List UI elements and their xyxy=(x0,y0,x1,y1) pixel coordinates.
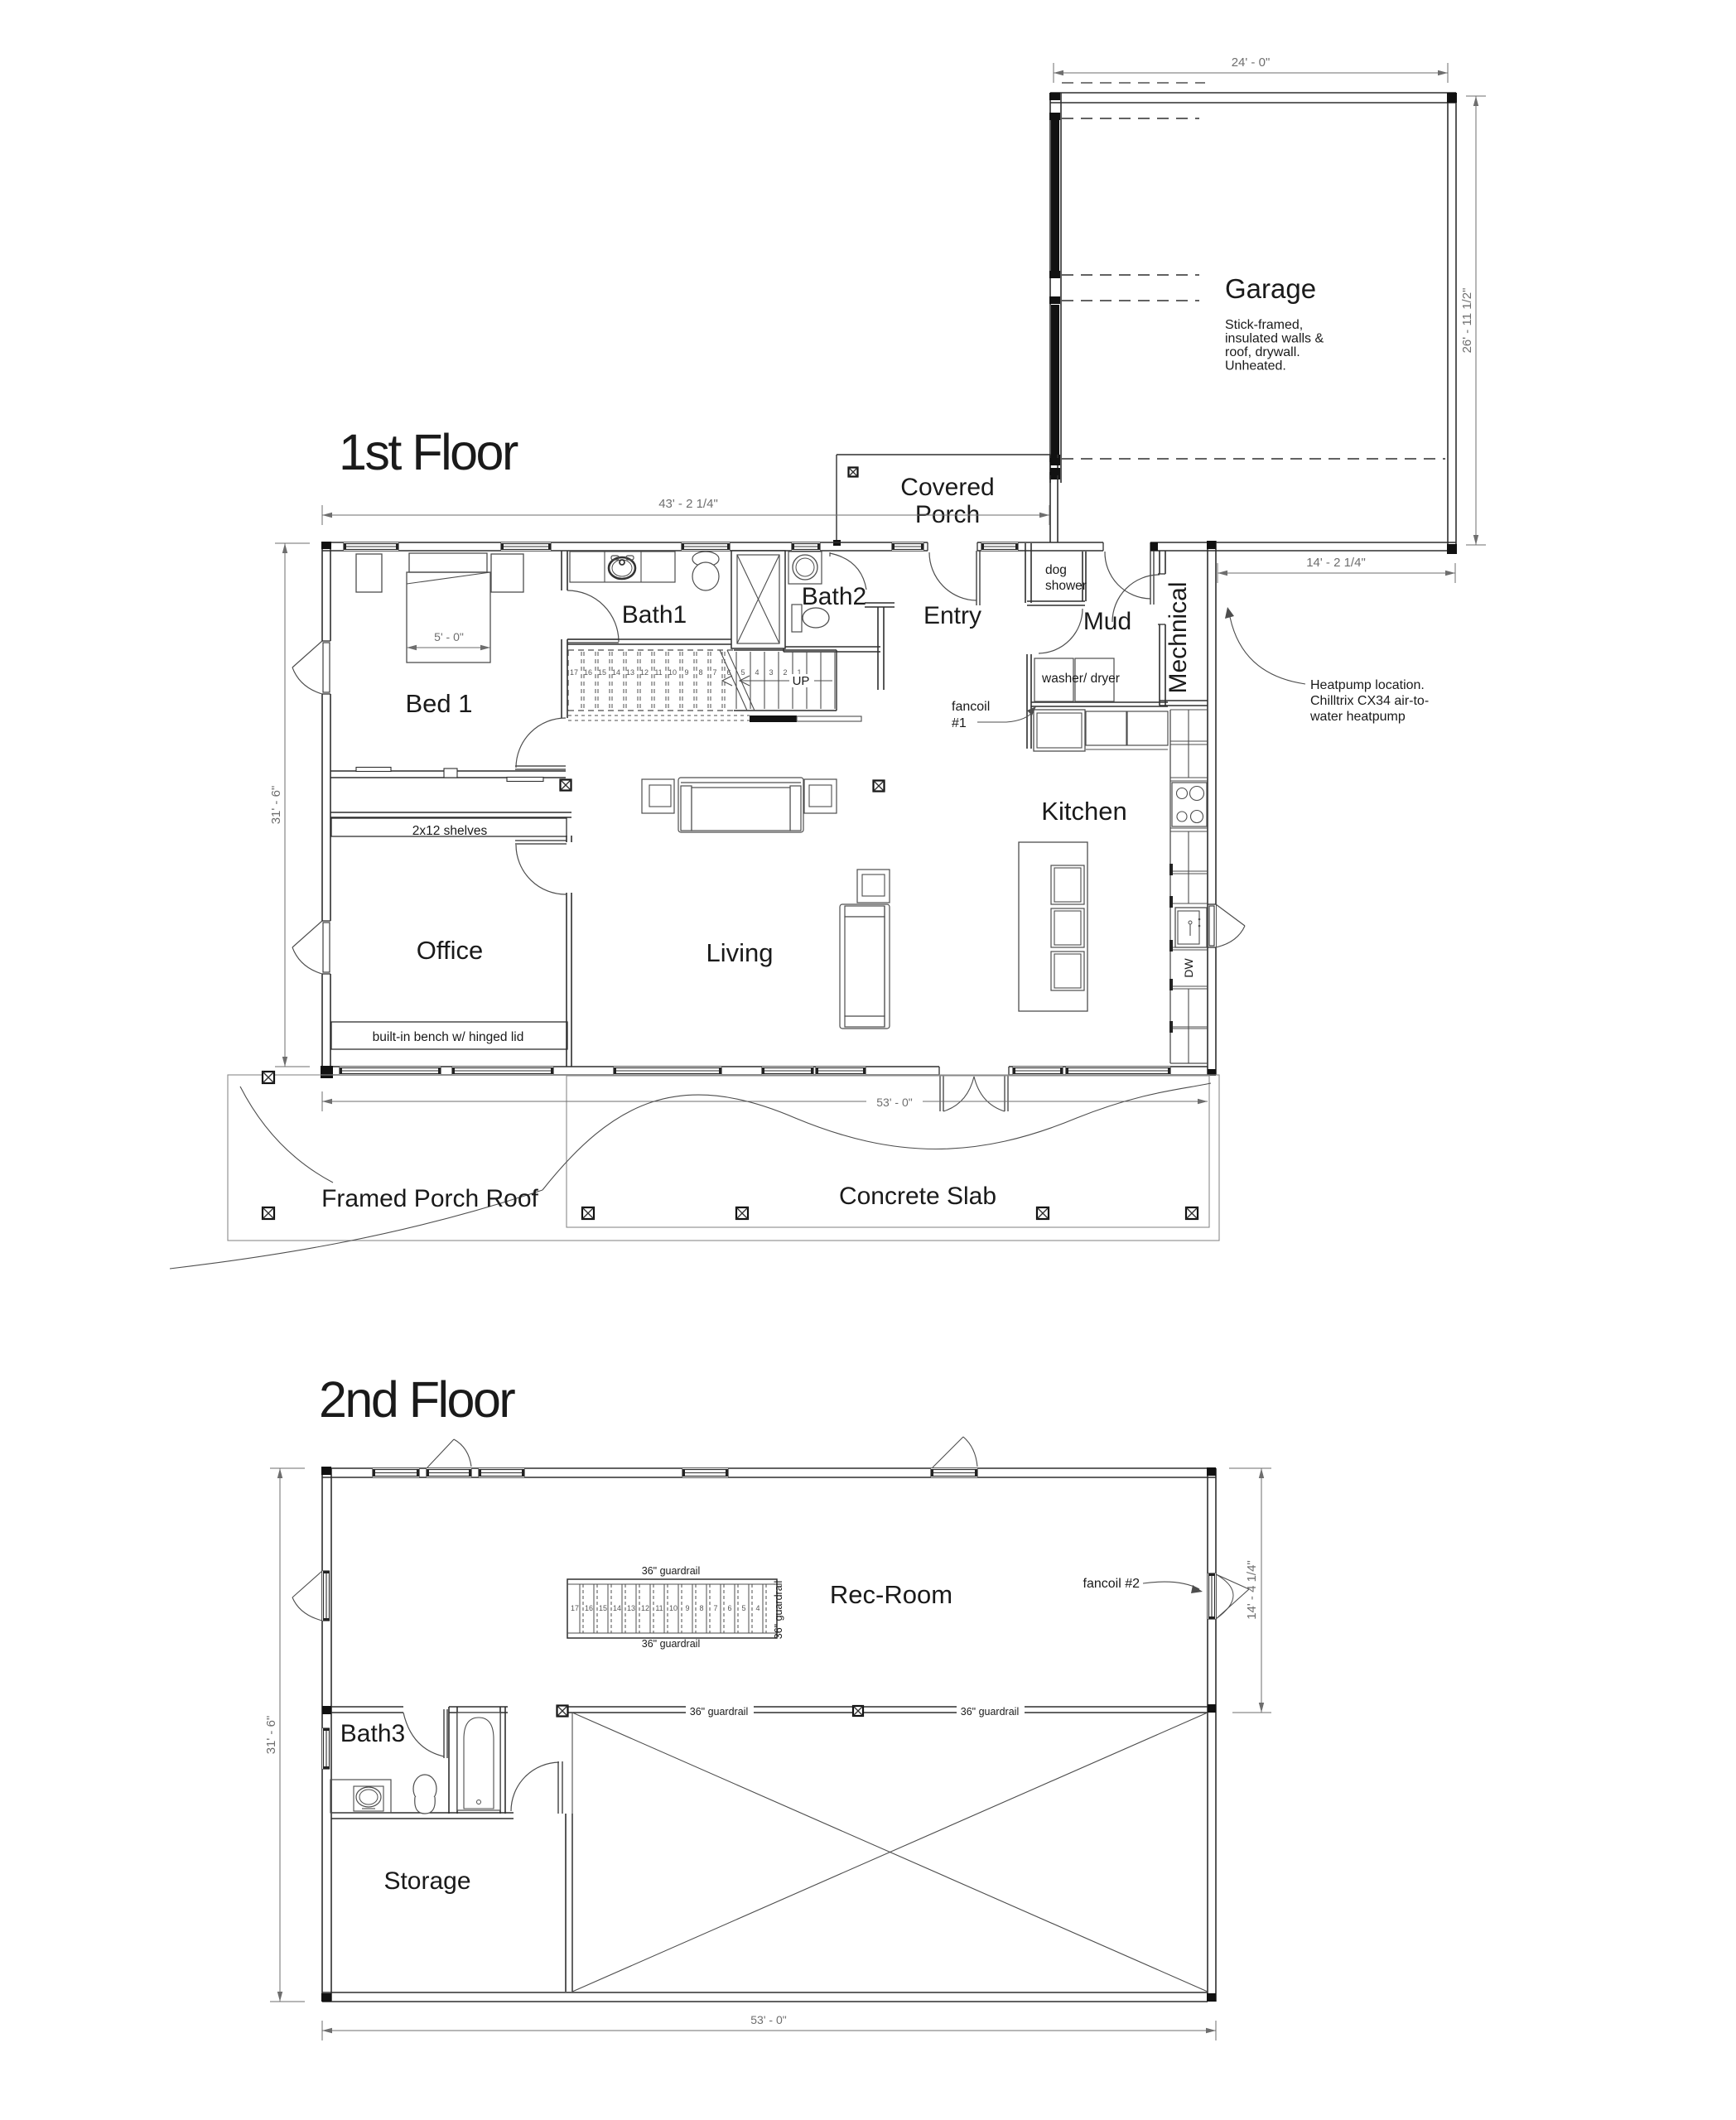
svg-text:36" guardrail: 36" guardrail xyxy=(642,1638,700,1650)
svg-text:Heatpump location.: Heatpump location. xyxy=(1310,678,1425,692)
svg-text:Office: Office xyxy=(417,936,483,965)
svg-text:Mechnical: Mechnical xyxy=(1165,581,1192,693)
svg-text:14' - 2 1/4": 14' - 2 1/4" xyxy=(1306,556,1366,570)
svg-text:9: 9 xyxy=(685,1604,689,1612)
svg-text:53' - 0": 53' - 0" xyxy=(876,1096,912,1109)
svg-text:17: 17 xyxy=(571,1604,579,1612)
svg-text:4: 4 xyxy=(755,1604,759,1612)
svg-text:31' - 6": 31' - 6" xyxy=(264,1716,278,1755)
svg-text:fancoil #2: fancoil #2 xyxy=(1083,1577,1140,1591)
svg-text:7: 7 xyxy=(712,668,716,677)
svg-text:shower: shower xyxy=(1045,579,1087,593)
svg-text:Chilltrix CX34 air-to-: Chilltrix CX34 air-to- xyxy=(1310,694,1429,708)
svg-text:6: 6 xyxy=(727,1604,731,1612)
svg-text:13: 13 xyxy=(627,1604,635,1612)
svg-text:5: 5 xyxy=(741,1604,745,1612)
svg-text:Covered: Covered xyxy=(900,474,994,501)
svg-text:14' - 4 1/4": 14' - 4 1/4" xyxy=(1245,1560,1259,1620)
svg-text:built-in bench w/ hinged lid: built-in bench w/ hinged lid xyxy=(373,1030,524,1044)
svg-text:2: 2 xyxy=(783,668,787,677)
svg-text:Entry: Entry xyxy=(923,602,981,629)
svg-text:Rec-Room: Rec-Room xyxy=(830,1580,952,1609)
svg-text:36" guardrail: 36" guardrail xyxy=(773,1581,784,1639)
svg-text:3: 3 xyxy=(769,668,773,677)
svg-text:2nd Floor: 2nd Floor xyxy=(319,1371,515,1428)
svg-text:Garage: Garage xyxy=(1225,273,1316,304)
svg-text:11: 11 xyxy=(654,668,662,677)
svg-text:Living: Living xyxy=(706,938,774,967)
svg-text:26' - 11 1/2": 26' - 11 1/2" xyxy=(1460,288,1474,354)
svg-text:15: 15 xyxy=(599,1604,607,1612)
svg-text:53' - 0": 53' - 0" xyxy=(750,2013,786,2026)
svg-text:7: 7 xyxy=(713,1604,717,1612)
svg-text:13: 13 xyxy=(626,668,634,677)
svg-text:17: 17 xyxy=(570,668,578,677)
svg-text:fancoil: fancoil xyxy=(952,700,990,714)
svg-text:dog: dog xyxy=(1045,563,1067,577)
svg-text:43' - 2 1/4": 43' - 2 1/4" xyxy=(658,497,718,511)
svg-text:2x12 shelves: 2x12 shelves xyxy=(412,824,488,838)
svg-text:36" guardrail: 36" guardrail xyxy=(961,1706,1019,1718)
svg-text:5' - 0": 5' - 0" xyxy=(434,630,464,643)
svg-text:10: 10 xyxy=(669,1604,678,1612)
svg-text:14: 14 xyxy=(613,1604,621,1612)
svg-text:24' - 0": 24' - 0" xyxy=(1232,55,1271,70)
svg-text:UP: UP xyxy=(793,674,810,688)
svg-text:14: 14 xyxy=(612,668,620,677)
svg-text:Stick-framed,: Stick-framed, xyxy=(1225,318,1303,332)
svg-text:Kitchen: Kitchen xyxy=(1041,797,1126,826)
svg-text:9: 9 xyxy=(684,668,688,677)
svg-text:16: 16 xyxy=(585,1604,593,1612)
svg-text:water heatpump: water heatpump xyxy=(1309,710,1406,724)
svg-text:Bed 1: Bed 1 xyxy=(405,689,472,718)
svg-text:16: 16 xyxy=(584,668,592,677)
svg-text:31' - 6": 31' - 6" xyxy=(269,786,283,825)
svg-text:#1: #1 xyxy=(952,716,967,730)
svg-text:5: 5 xyxy=(740,668,745,677)
svg-text:8: 8 xyxy=(698,668,702,677)
svg-text:15: 15 xyxy=(598,668,606,677)
svg-text:10: 10 xyxy=(668,668,677,677)
svg-text:Storage: Storage xyxy=(383,1867,470,1895)
svg-text:insulated walls &: insulated walls & xyxy=(1225,332,1324,346)
svg-text:Concrete Slab: Concrete Slab xyxy=(839,1183,996,1210)
svg-text:12: 12 xyxy=(640,668,649,677)
svg-text:Framed Porch Roof: Framed Porch Roof xyxy=(321,1185,538,1212)
svg-text:Mud: Mud xyxy=(1083,608,1131,635)
svg-text:36" guardrail: 36" guardrail xyxy=(642,1565,700,1577)
svg-text:Unheated.: Unheated. xyxy=(1225,359,1286,373)
svg-text:11: 11 xyxy=(655,1604,663,1612)
svg-text:36" guardrail: 36" guardrail xyxy=(690,1706,748,1718)
svg-text:1st Floor: 1st Floor xyxy=(339,424,518,480)
svg-text:Bath3: Bath3 xyxy=(340,1720,405,1747)
svg-text:washer/ dryer: washer/ dryer xyxy=(1041,672,1120,686)
svg-text:DW: DW xyxy=(1182,958,1195,978)
svg-text:4: 4 xyxy=(755,668,759,677)
svg-text:Bath1: Bath1 xyxy=(622,601,687,629)
svg-text:Bath2: Bath2 xyxy=(802,583,866,610)
svg-text:roof, drywall.: roof, drywall. xyxy=(1225,345,1300,359)
svg-text:12: 12 xyxy=(641,1604,649,1612)
svg-text:8: 8 xyxy=(699,1604,703,1612)
